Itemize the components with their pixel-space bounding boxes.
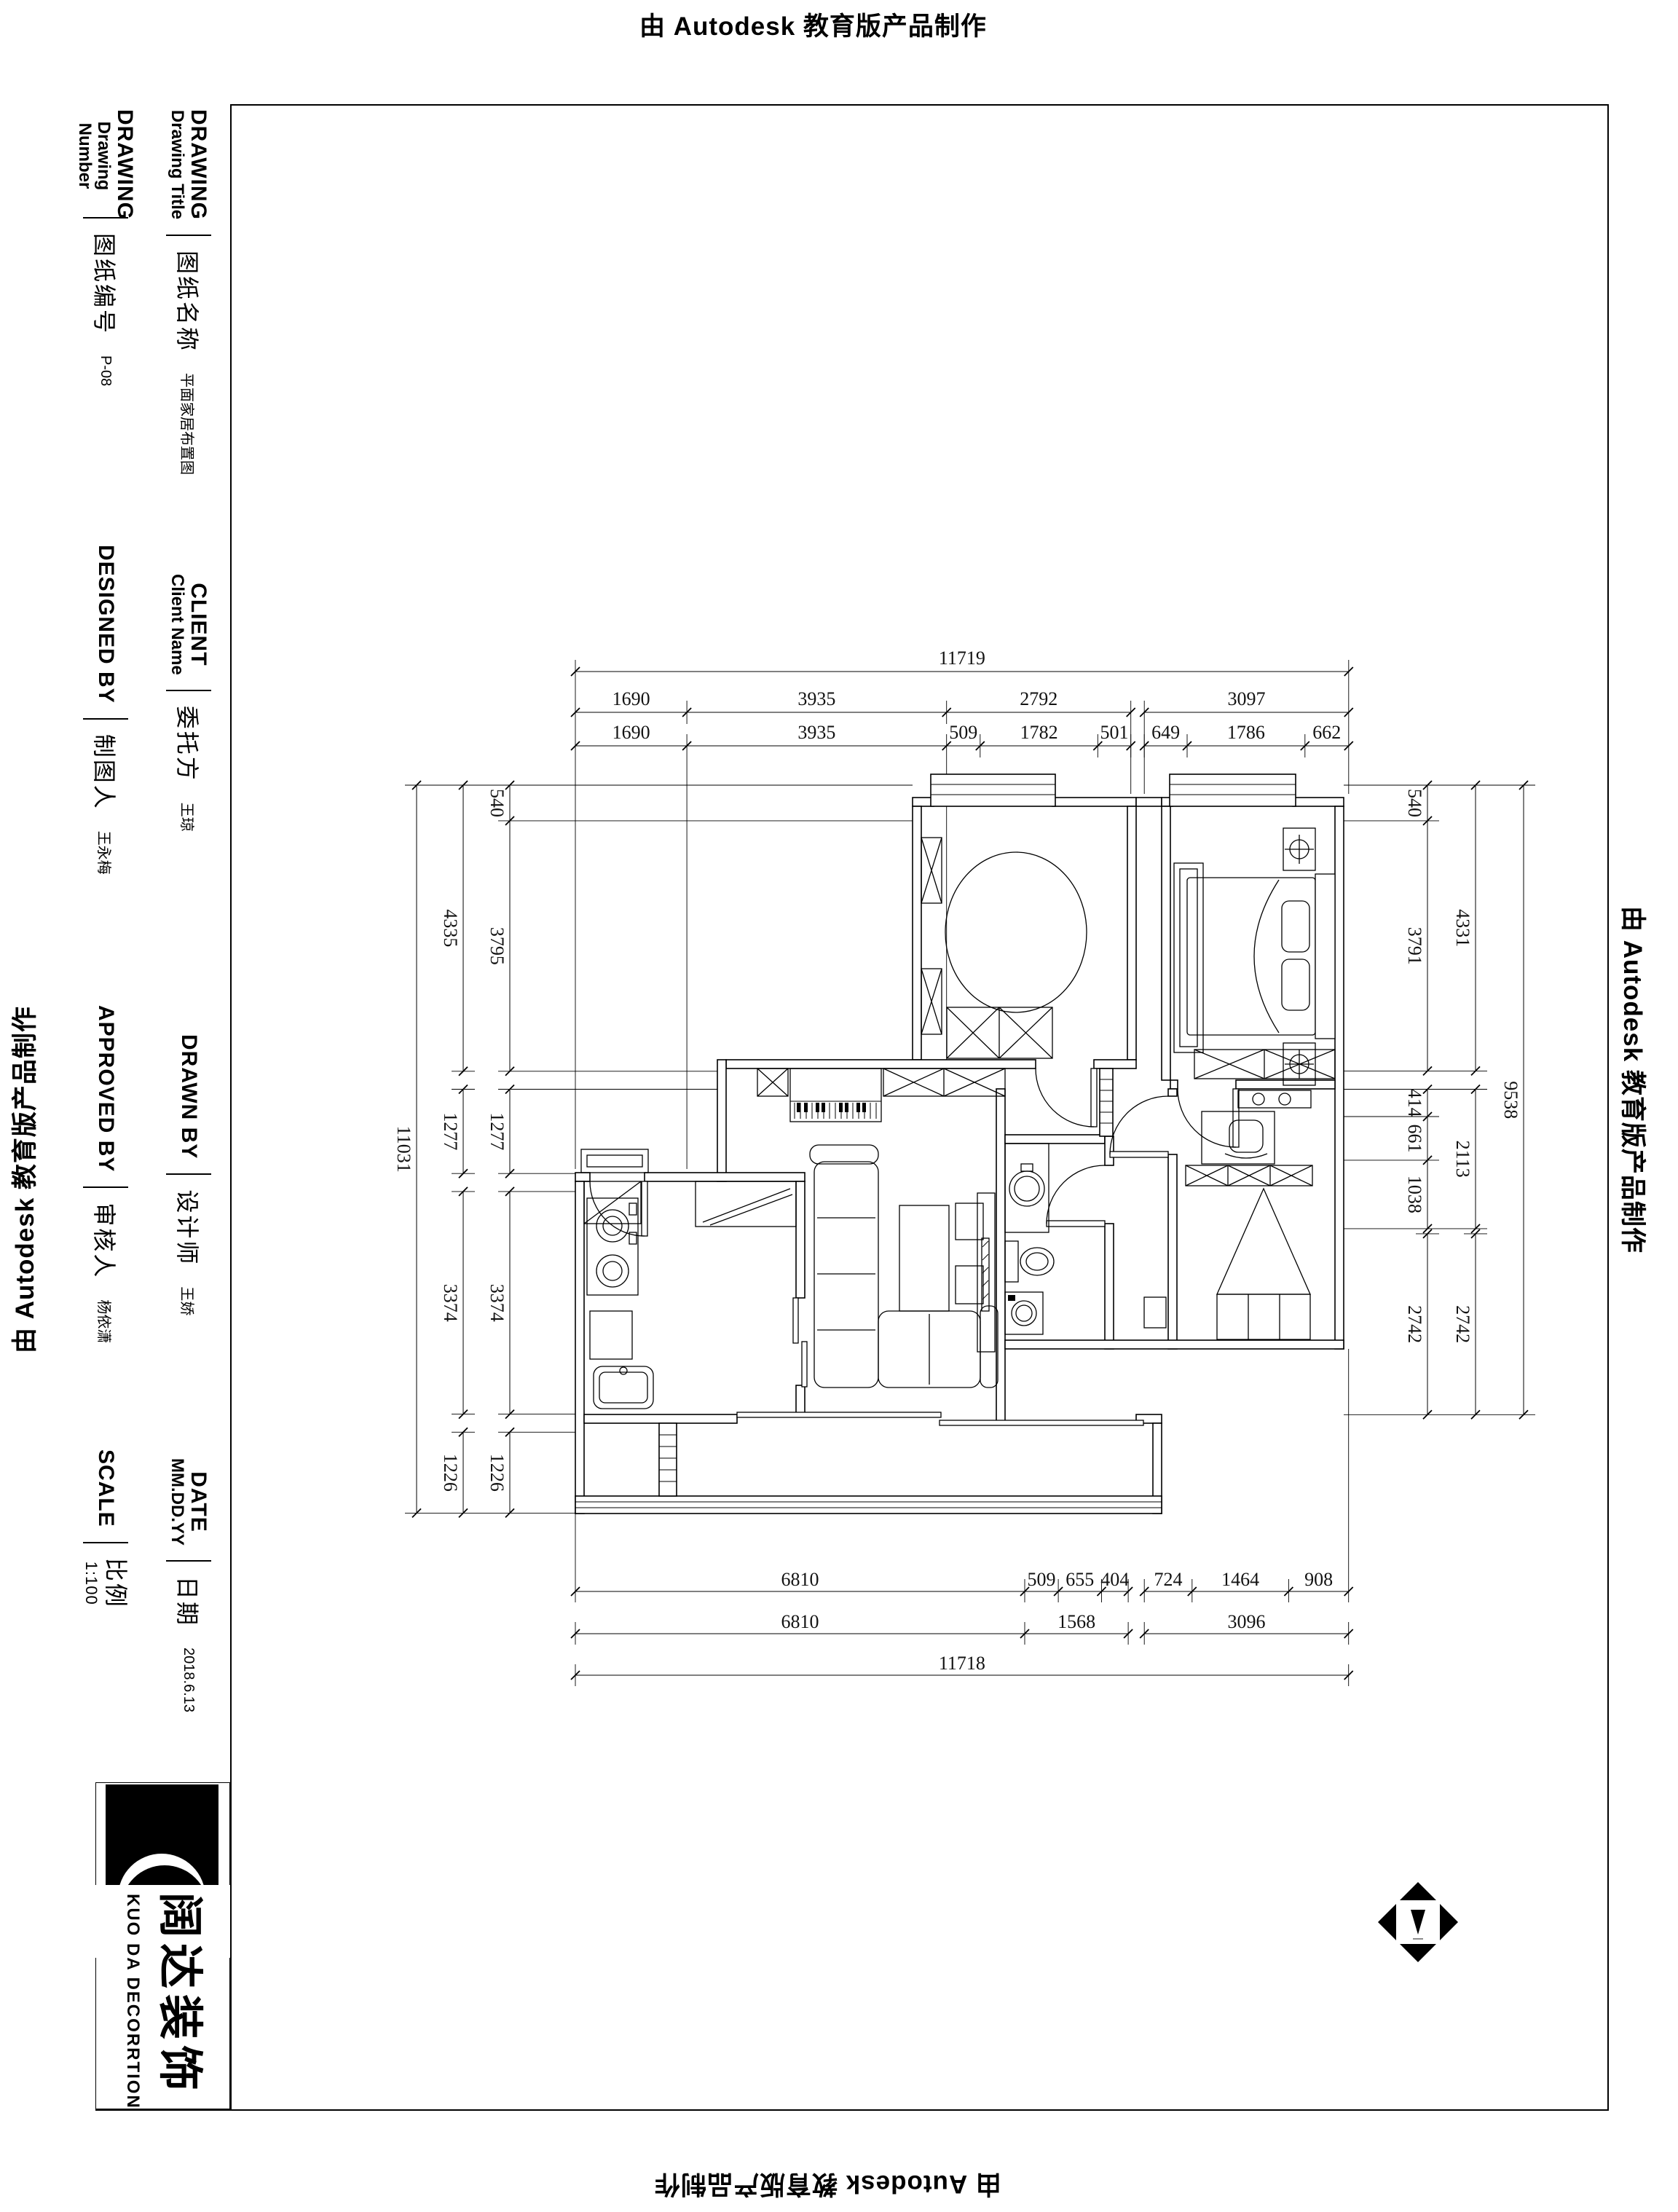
hall-cabinet bbox=[1144, 1297, 1166, 1328]
headboard bbox=[1315, 874, 1335, 1039]
dresser bbox=[1238, 1090, 1311, 1108]
dim: 3097 bbox=[1228, 688, 1266, 709]
dim: 1038 bbox=[1404, 1176, 1425, 1213]
walls bbox=[575, 774, 1344, 1514]
dim: 3935 bbox=[797, 722, 835, 743]
dim: 724 bbox=[1154, 1569, 1183, 1590]
side-table bbox=[956, 1266, 983, 1304]
dim: 4335 bbox=[440, 909, 461, 947]
dim: 3791 bbox=[1404, 927, 1425, 965]
door-arc-master bbox=[1178, 1089, 1236, 1147]
dim: 1568 bbox=[1057, 1611, 1095, 1632]
piano bbox=[757, 1068, 1005, 1122]
door-leaf-entry bbox=[642, 1181, 647, 1236]
bedroom3-furniture bbox=[1186, 1090, 1312, 1339]
sofa bbox=[814, 1162, 878, 1388]
dim: 404 bbox=[1100, 1569, 1129, 1590]
door-leaf-bedroom1 bbox=[1091, 1068, 1097, 1127]
bathroom-fixtures bbox=[1005, 1144, 1166, 1334]
sliding-door-balcony bbox=[940, 1420, 1143, 1425]
dim: 2792 bbox=[1020, 688, 1057, 709]
door-arc-bedroom1 bbox=[1036, 1068, 1094, 1127]
dim-top-total: 11719 bbox=[939, 648, 985, 669]
dim: 1226 bbox=[440, 1454, 461, 1492]
dim: 3935 bbox=[797, 688, 835, 709]
dim: 3374 bbox=[440, 1284, 461, 1322]
dim: 6810 bbox=[781, 1611, 819, 1632]
dim: 649 bbox=[1151, 722, 1180, 743]
dim: 1277 bbox=[440, 1112, 461, 1150]
dim-chain-left: 540 3795 1277 3374 1226 4335 1277 3374 1… bbox=[393, 781, 913, 1517]
dim: 509 bbox=[1028, 1569, 1056, 1590]
sliding-door-kitchen bbox=[793, 1298, 798, 1343]
dim: 1464 bbox=[1221, 1569, 1259, 1590]
dim: 1786 bbox=[1227, 722, 1265, 743]
drying-rack bbox=[1217, 1189, 1310, 1294]
dim: 2742 bbox=[1404, 1305, 1425, 1343]
dim: 1277 bbox=[487, 1112, 508, 1150]
dim: 655 bbox=[1066, 1569, 1094, 1590]
toilet bbox=[1020, 1248, 1054, 1275]
pillow bbox=[1282, 959, 1309, 1010]
dim: 3096 bbox=[1228, 1611, 1266, 1632]
dim: 3795 bbox=[487, 927, 508, 965]
doors bbox=[590, 1068, 1239, 1425]
bedroom1-furniture bbox=[921, 838, 1087, 1058]
pillow bbox=[1282, 901, 1309, 952]
dim: 6810 bbox=[781, 1569, 819, 1590]
dim: 540 bbox=[1404, 789, 1425, 817]
round-table bbox=[945, 852, 1087, 1012]
dim: 1690 bbox=[612, 722, 650, 743]
dim: 1690 bbox=[612, 688, 650, 709]
door-arc-bedroom3 bbox=[1110, 1096, 1168, 1154]
kitchen-furniture bbox=[584, 1181, 796, 1409]
door-arc-bath bbox=[1047, 1165, 1105, 1224]
dim: 501 bbox=[1100, 722, 1129, 743]
sliding-door-kitchen bbox=[802, 1342, 807, 1387]
upper-cabinet bbox=[696, 1181, 796, 1227]
side-table bbox=[956, 1203, 983, 1240]
dim: 661 bbox=[1404, 1125, 1425, 1153]
dim: 3374 bbox=[487, 1284, 508, 1322]
coffee-table bbox=[899, 1205, 949, 1311]
dim: 4331 bbox=[1452, 909, 1473, 947]
dim-bottom-total: 11718 bbox=[939, 1653, 985, 1674]
dim: 1782 bbox=[1020, 722, 1058, 743]
dim: 908 bbox=[1304, 1569, 1333, 1590]
dim: 2742 bbox=[1452, 1305, 1473, 1343]
master-bedroom-furniture bbox=[1174, 828, 1335, 1085]
counter bbox=[590, 1311, 632, 1359]
dim-chain-right: 540 3791 414 661 1038 2742 4331 2113 274… bbox=[1344, 781, 1535, 1419]
vanity-counter bbox=[1005, 1144, 1049, 1232]
dim-left-total: 11031 bbox=[393, 1126, 414, 1173]
dim-right-total: 9538 bbox=[1500, 1081, 1521, 1119]
door-leaf-bath bbox=[1047, 1221, 1105, 1227]
dim: 662 bbox=[1312, 722, 1341, 743]
dim: 2113 bbox=[1452, 1141, 1473, 1178]
living-room-furniture bbox=[810, 1145, 998, 1388]
floor-plan-canvas: 11719 1690 3935 2792 3097 1690 3935 509 … bbox=[0, 0, 1678, 2212]
north-arrow-icon bbox=[1378, 1882, 1458, 1962]
sliding-door-balcony bbox=[737, 1412, 941, 1417]
dim: 509 bbox=[949, 722, 977, 743]
dim: 1226 bbox=[487, 1454, 508, 1492]
dim: 540 bbox=[487, 789, 508, 817]
dim: 414 bbox=[1404, 1089, 1425, 1117]
door-leaf-bedroom3 bbox=[1110, 1152, 1168, 1157]
dim-chain-bottom: 6810 509 655 404 724 1464 908 6810 1568 … bbox=[571, 1349, 1353, 1686]
